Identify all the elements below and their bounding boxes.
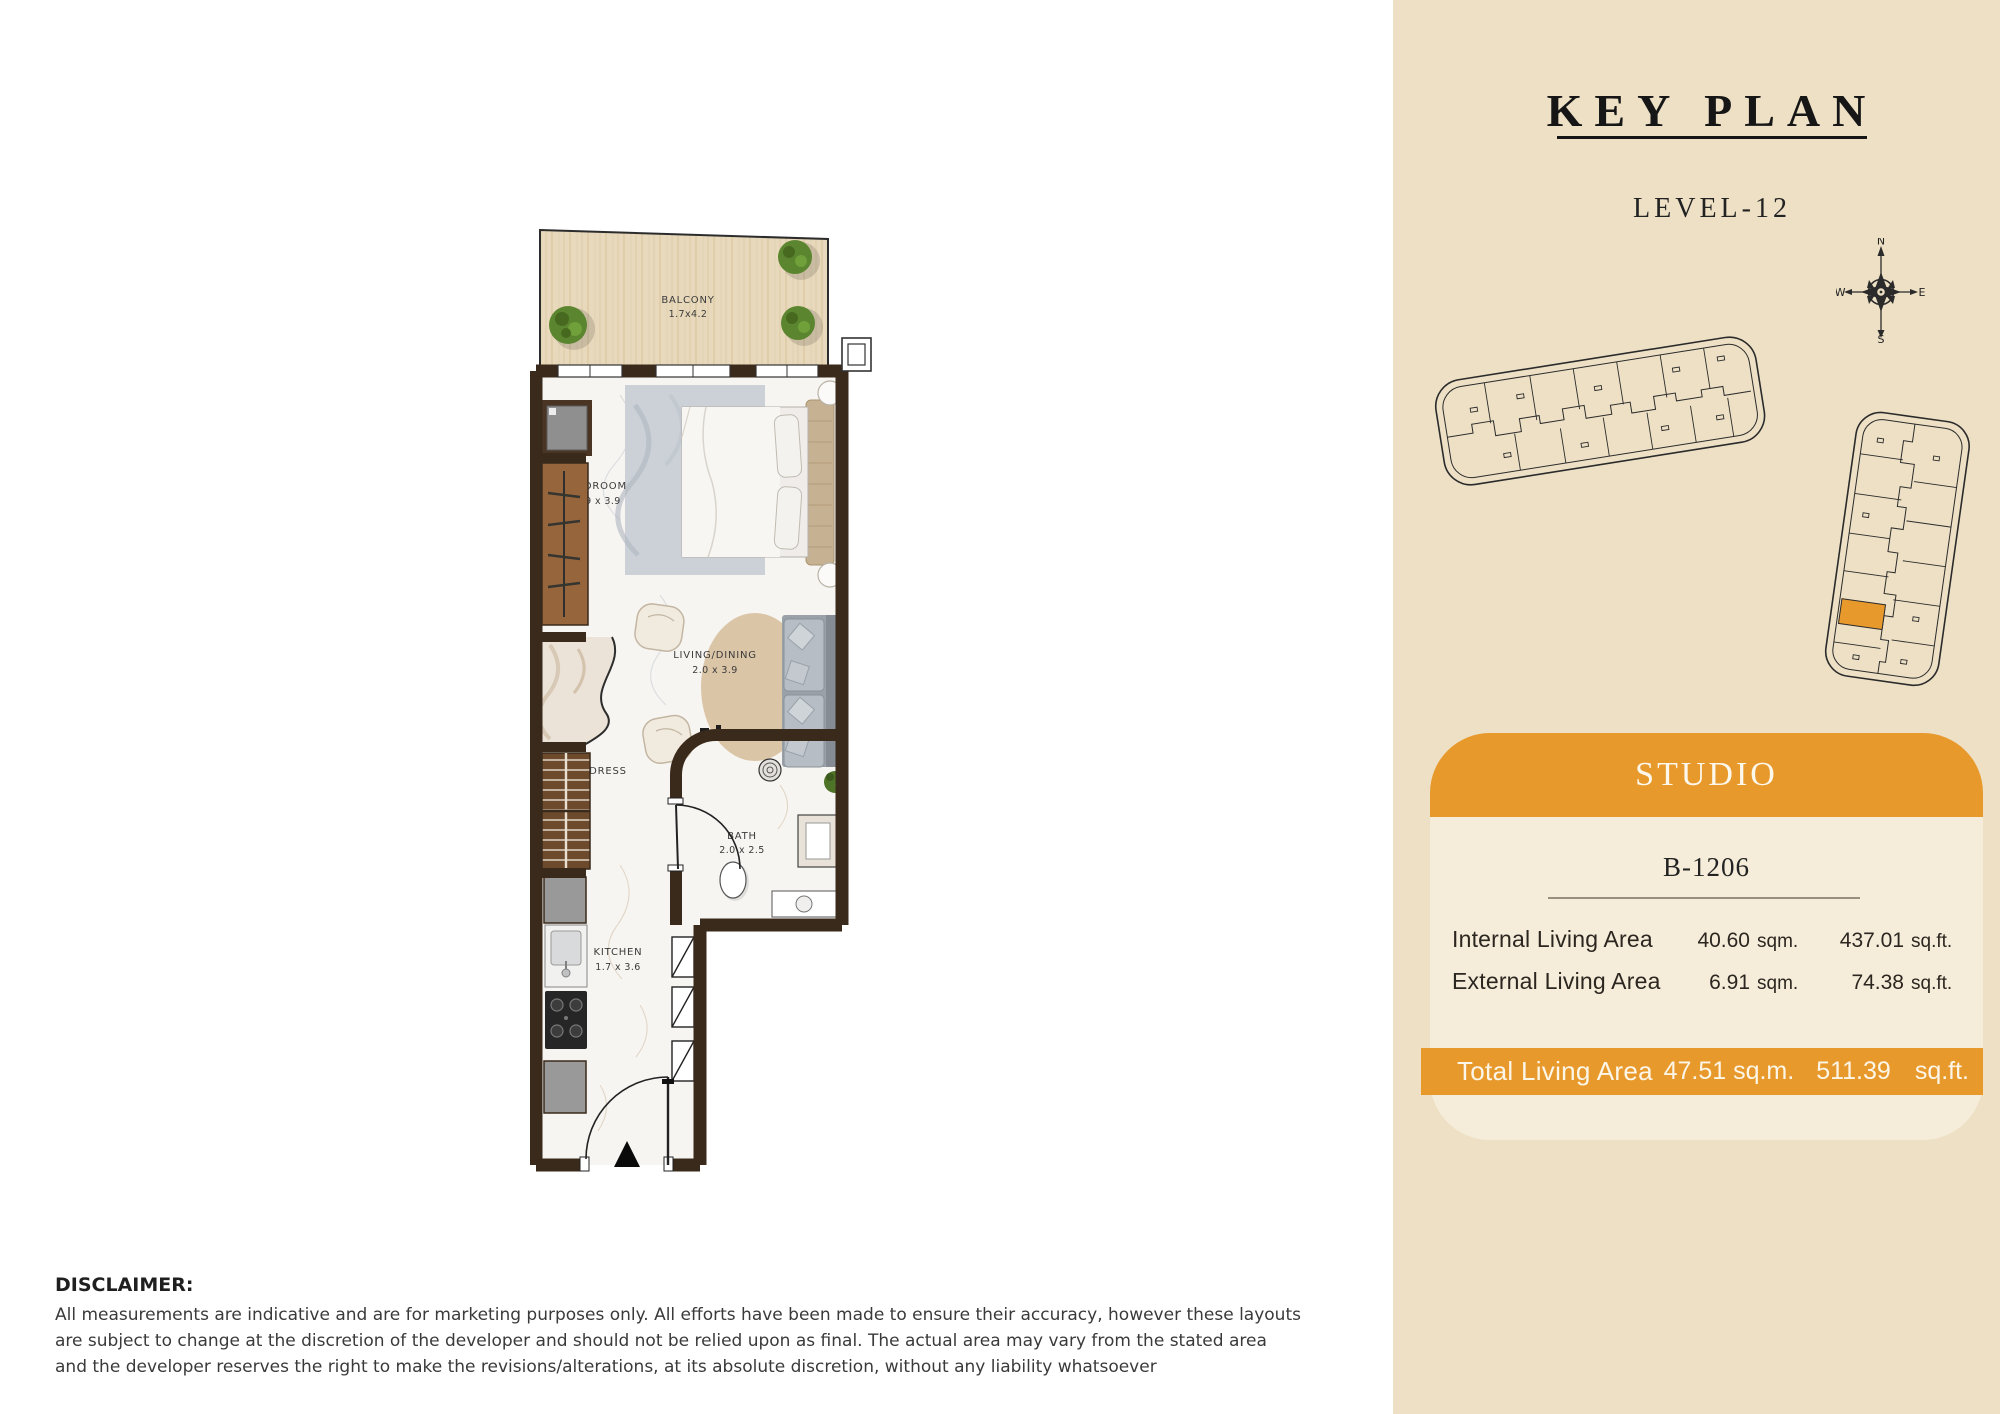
level-label: LEVEL-12: [1446, 193, 1978, 225]
dress-shelves: [542, 753, 590, 869]
external-area-sqft-value: 74.38: [1812, 971, 1904, 995]
dress-label: DRESS: [589, 766, 627, 777]
building-a-outline: [1428, 330, 1773, 492]
living-label: LIVING/DINING: [673, 650, 757, 661]
compass-n: N: [1877, 238, 1885, 248]
disclaimer-line: are subject to change at the discretion …: [55, 1328, 1375, 1354]
disclaimer-heading: DISCLAIMER:: [55, 1274, 1375, 1296]
unit-number-underline: [1548, 897, 1860, 899]
kitchen-stove: [545, 991, 587, 1049]
total-area-sqft-value: 511.39: [1816, 1057, 1891, 1086]
external-area-sqm-value: 6.91: [1670, 971, 1750, 995]
compass-e: E: [1919, 286, 1926, 299]
highlighted-unit: [1838, 599, 1885, 630]
armchair: [633, 602, 686, 653]
floor-plan: BALCONY 1.7x4.2: [530, 225, 875, 1175]
key-plan-title: KEY PLAN: [1446, 84, 1978, 137]
total-area-sqm: 47.51 sq.m.: [1664, 1057, 1795, 1086]
total-area-sqft-unit: sq.ft.: [1915, 1057, 1969, 1086]
compass-icon: N E S W: [1836, 238, 1926, 343]
kitchen-sink: [545, 925, 587, 987]
external-area-sqft-unit: sq.ft.: [1904, 973, 1964, 995]
total-living-area-bar: Total Living Area 47.51 sq.m. 511.39 sq.…: [1421, 1048, 1983, 1095]
balcony: BALCONY 1.7x4.2: [540, 230, 828, 367]
internal-area-row: Internal Living Area 40.60 sqm. 437.01 s…: [1452, 926, 1964, 956]
building-b-outline: [1824, 408, 1972, 696]
shower: [798, 815, 838, 867]
title-underline: [1557, 136, 1867, 139]
kitchen-utility-upper: [544, 877, 586, 923]
disclaimer: DISCLAIMER: All measurements are indicat…: [55, 1274, 1375, 1380]
kitchen-utility-lower: [544, 1061, 586, 1113]
internal-area-sqft-value: 437.01: [1812, 929, 1904, 953]
bed: [682, 400, 834, 565]
bath-dims: 2.0 x 2.5: [719, 845, 764, 856]
balcony-label: BALCONY: [661, 295, 714, 306]
internal-area-sqm-unit: sqm.: [1750, 931, 1812, 953]
balcony-dims: 1.7x4.2: [669, 309, 708, 320]
sofa: [782, 615, 838, 767]
unit-type-header: STUDIO: [1430, 733, 1983, 817]
external-area-label: External Living Area: [1452, 968, 1670, 995]
external-area-row: External Living Area 6.91 sqm. 74.38 sq.…: [1452, 968, 1964, 998]
unit-type-label: STUDIO: [1635, 756, 1778, 794]
internal-area-label: Internal Living Area: [1452, 926, 1670, 953]
internal-area-sqft-unit: sq.ft.: [1904, 931, 1964, 953]
utility-box: [542, 400, 592, 456]
kitchen-dims: 1.7 x 3.6: [595, 962, 640, 973]
internal-area-sqm-value: 40.60: [1670, 929, 1750, 953]
unit-number: B-1206: [1430, 852, 1983, 883]
floorplan-page: BALCONY 1.7x4.2: [0, 0, 2000, 1414]
bath-counter: [772, 891, 838, 917]
external-area-sqm-unit: sqm.: [1750, 973, 1812, 995]
disclaimer-line: and the developer reserves the right to …: [55, 1354, 1375, 1380]
balcony-corner-box: [842, 338, 871, 371]
shower-drain: [759, 759, 781, 781]
wardrobe: [542, 463, 588, 625]
total-area-label: Total Living Area: [1457, 1056, 1653, 1087]
living-dims: 2.0 x 3.9: [692, 665, 737, 676]
compass-w: W: [1836, 286, 1846, 299]
balcony-windows: [558, 365, 818, 377]
shaft-panels: [672, 937, 694, 1081]
compass-s: S: [1878, 333, 1885, 343]
disclaimer-line: All measurements are indicative and are …: [55, 1302, 1375, 1328]
kitchen-label: KITCHEN: [594, 947, 643, 958]
